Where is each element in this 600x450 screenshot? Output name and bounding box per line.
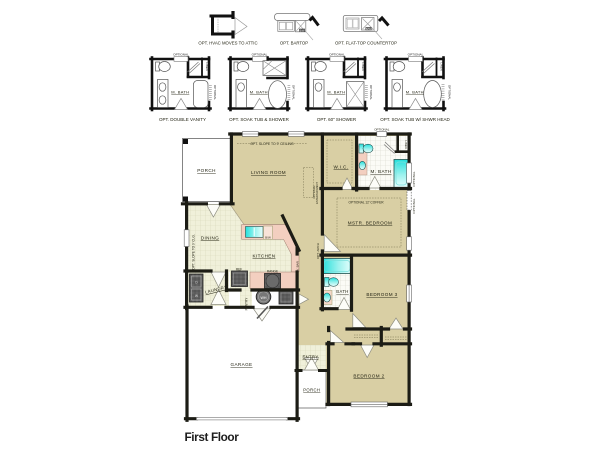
svg-text:OPTIONAL: OPTIONAL (369, 85, 373, 101)
svg-text:PORCH: PORCH (303, 387, 320, 392)
svg-text:M. BATH: M. BATH (250, 90, 268, 95)
svg-text:OPT. HVAC MOVES TO ATTIC: OPT. HVAC MOVES TO ATTIC (198, 40, 257, 45)
svg-text:First Floor: First Floor (185, 430, 240, 444)
svg-text:OPTIONAL: OPTIONAL (412, 171, 416, 187)
svg-text:RANGE: RANGE (267, 270, 278, 274)
svg-text:OPT. SOAK TUB W/ SHWR HEAD: OPT. SOAK TUB W/ SHWR HEAD (380, 117, 450, 122)
svg-text:BATH: BATH (336, 289, 348, 294)
svg-text:OPTIONAL: OPTIONAL (329, 53, 345, 57)
svg-text:B/W: B/W (265, 236, 271, 240)
svg-text:M. BATH: M. BATH (406, 90, 424, 95)
svg-text:LINEN: LINEN (404, 140, 408, 148)
svg-text:WH: WH (261, 296, 267, 300)
svg-text:PORCH: PORCH (197, 168, 216, 173)
svg-text:OPTIONAL: OPTIONAL (213, 85, 217, 101)
svg-text:OPT. DOUBLE VANITY: OPT. DOUBLE VANITY (159, 117, 206, 122)
svg-text:OPT. ARCH: OPT. ARCH (316, 243, 320, 259)
svg-text:M. BATH: M. BATH (370, 169, 391, 174)
svg-text:BEDROOM 3: BEDROOM 3 (366, 292, 397, 297)
svg-text:OPT. SOAK TUB & SHOWER: OPT. SOAK TUB & SHOWER (229, 117, 289, 122)
svg-text:OPTIONAL: OPTIONAL (448, 85, 452, 101)
svg-text:OPT. 60" SHOWER: OPT. 60" SHOWER (317, 117, 357, 122)
svg-text:OPTIONAL: OPTIONAL (374, 127, 390, 131)
svg-text:B/W: B/W (300, 28, 305, 32)
svg-text:OPT. SLOPE TO 9' CLG.: OPT. SLOPE TO 9' CLG. (192, 234, 196, 270)
svg-text:KITCHEN: KITCHEN (253, 254, 276, 259)
svg-text:OPTIONAL: OPTIONAL (292, 85, 296, 101)
svg-text:ENTRY: ENTRY (302, 355, 318, 360)
svg-text:PANTRY: PANTRY (245, 297, 249, 311)
svg-text:BEDROOM 2: BEDROOM 2 (353, 374, 384, 379)
svg-text:ENTERTAINMENT: ENTERTAINMENT (315, 182, 319, 204)
svg-text:OPTIONAL: OPTIONAL (412, 198, 416, 214)
svg-text:OPT. SLOPE TO 9' CEILING: OPT. SLOPE TO 9' CEILING (250, 142, 294, 146)
svg-text:LINEN: LINEN (440, 62, 444, 70)
svg-text:OPTIONAL 12' COFFER: OPTIONAL 12' COFFER (348, 201, 384, 205)
svg-text:OPTIONAL: OPTIONAL (252, 53, 268, 57)
svg-text:B/W: B/W (366, 27, 371, 31)
svg-text:OPT. FLAT-TOP COUNTERTOP: OPT. FLAT-TOP COUNTERTOP (335, 40, 397, 45)
svg-text:REF: REF (236, 267, 242, 271)
svg-text:W.I.C.: W.I.C. (334, 165, 349, 170)
svg-text:OPTIONAL: OPTIONAL (173, 53, 189, 57)
svg-text:LIVING ROOM: LIVING ROOM (251, 170, 286, 175)
svg-text:GARAGE: GARAGE (230, 362, 252, 367)
svg-text:OPT. BARTOP: OPT. BARTOP (280, 40, 308, 45)
svg-text:SRV. BAR: SRV. BAR (295, 260, 299, 275)
svg-text:M. BATH: M. BATH (171, 90, 189, 95)
svg-text:DINING: DINING (201, 236, 220, 241)
svg-text:LINEN: LINEN (205, 62, 209, 70)
svg-text:OPTIONAL: OPTIONAL (408, 53, 424, 57)
svg-text:M. BATH: M. BATH (327, 90, 345, 95)
svg-text:LINEN: LINEN (361, 62, 365, 70)
svg-text:MSTR. BEDROOM: MSTR. BEDROOM (348, 221, 393, 226)
